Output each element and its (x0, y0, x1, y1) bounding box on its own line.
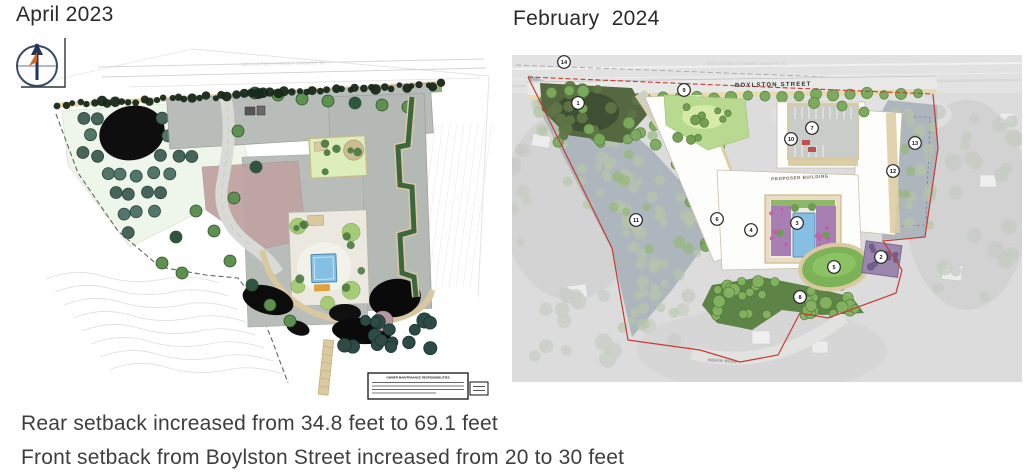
loading-pad (808, 147, 816, 152)
utility-pad (245, 107, 255, 115)
plan-marker-label-8: 8 (798, 295, 801, 301)
plan-marker-label-7: 7 (810, 126, 813, 132)
site-plan-comparison-slide: April 2023 February 2024 BOYLSTON STREET… (0, 0, 1024, 473)
right-panel-title: February 2024 (513, 7, 660, 31)
plan-marker-label-11: 11 (633, 218, 639, 224)
compass-north-letter: N (34, 44, 39, 51)
pool-deck-mat (314, 284, 330, 292)
maintenance-note-box: OWNER MAINTENANCE RESPONSIBILITIES (368, 373, 488, 399)
plan-marker-label-13: 13 (912, 141, 918, 147)
maintenance-note-title: OWNER MAINTENANCE RESPONSIBILITIES (386, 376, 449, 380)
parking-court (788, 98, 869, 160)
caption-rear-setback: Rear setback increased from 34.8 feet to… (21, 412, 498, 436)
pool-courtyard (288, 210, 369, 312)
street-name-label: BOYLSTON STREET (ROUTE 9) (242, 60, 325, 67)
site-plan-april-2023: BOYLSTON STREET (ROUTE 9) (10, 35, 500, 405)
plan-marker-label-5: 5 (832, 265, 835, 271)
plan-marker-label-10: 10 (788, 137, 794, 143)
plan-marker-label-12: 12 (890, 169, 896, 175)
plan-marker-label-2: 2 (879, 255, 882, 261)
loading-pad (802, 140, 810, 145)
utility-pad (257, 106, 265, 115)
plan-marker-label-9: 9 (682, 88, 685, 94)
plan-marker-label-1: 1 (576, 101, 579, 107)
plan-marker-label-14: 14 (561, 60, 568, 66)
highway-name-label: BOYLSTON STREET (ROUTE 9) (707, 61, 787, 66)
plan-marker-label-3: 3 (795, 221, 798, 227)
plan-marker-label-6: 6 (715, 217, 718, 223)
site-plan-february-2024: BOYLSTON STREET (ROUTE 9) (512, 55, 1022, 382)
upper-courtyard (309, 136, 367, 179)
north-arrow-compass: N (17, 38, 65, 87)
left-panel-title: April 2023 (16, 3, 114, 27)
caption-front-setback: Front setback from Boylston Street incre… (21, 446, 624, 470)
